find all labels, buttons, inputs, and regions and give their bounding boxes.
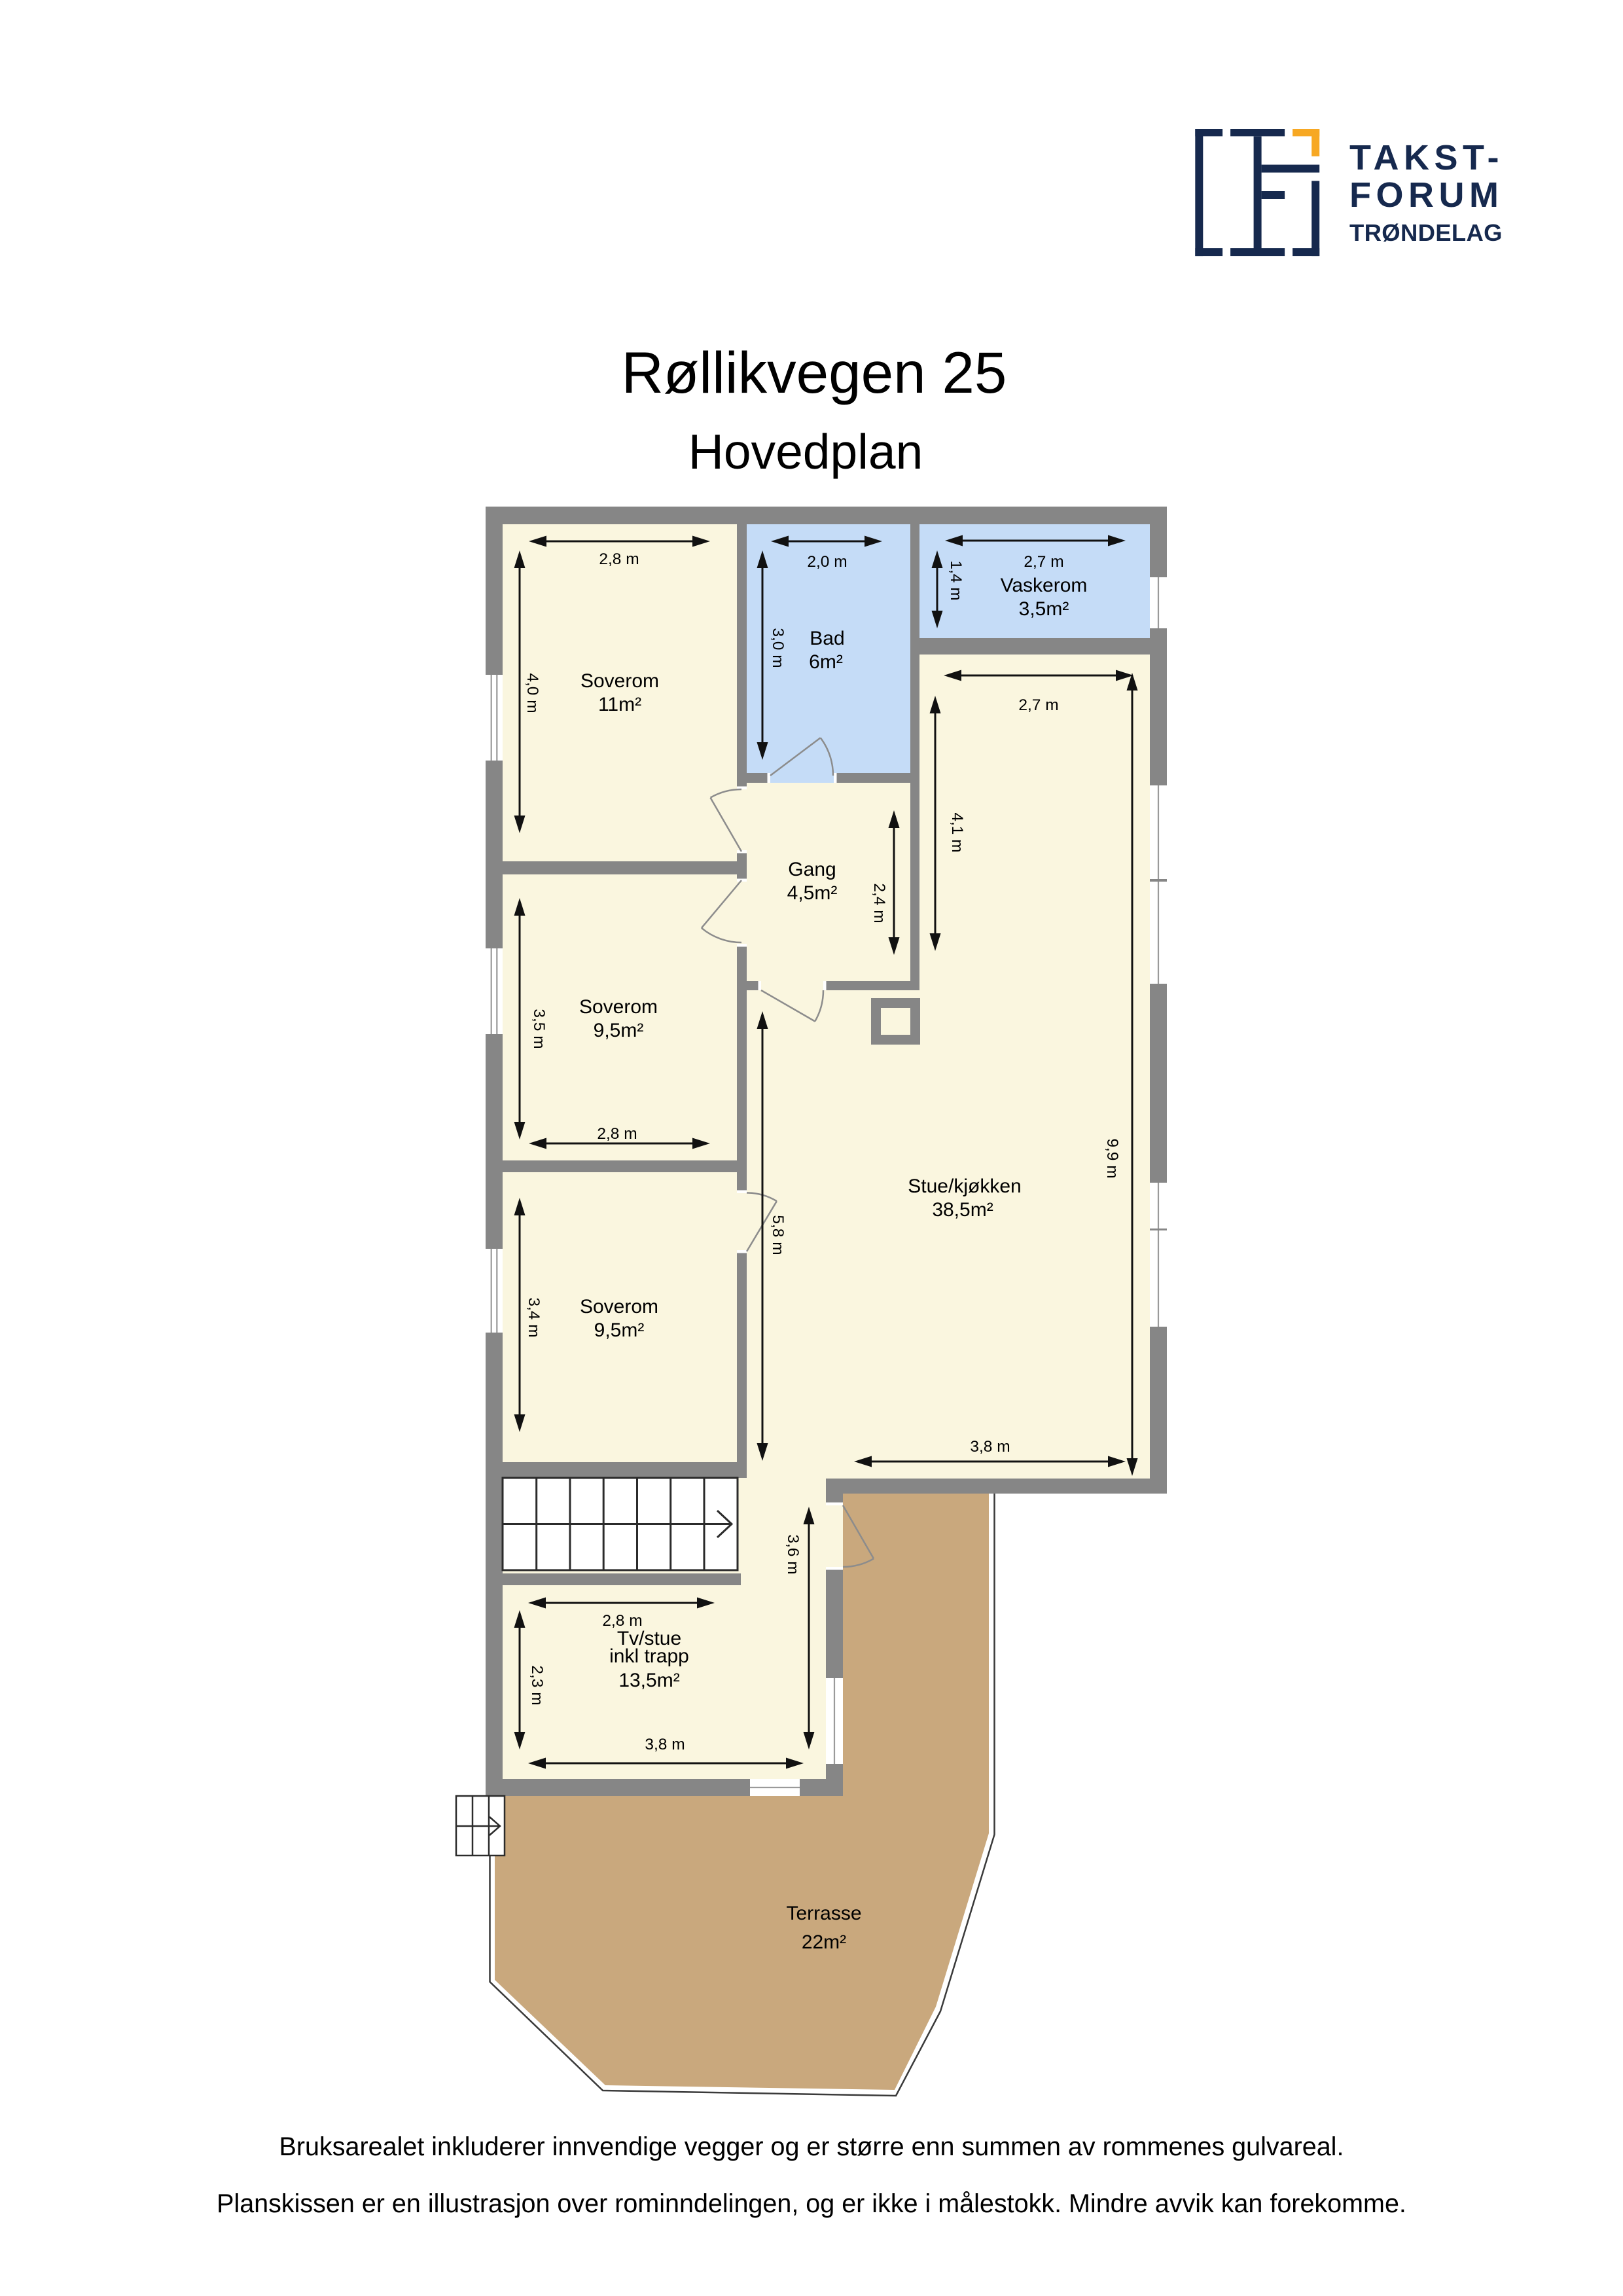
svg-text:TRØNDELAG: TRØNDELAG [1349, 219, 1503, 246]
svg-text:2,8 m: 2,8 m [599, 550, 639, 568]
svg-text:1,4 m: 1,4 m [947, 560, 965, 600]
svg-text:3,5 m: 3,5 m [530, 1009, 548, 1049]
svg-text:FORUM: FORUM [1349, 175, 1503, 215]
svg-text:2,8 m: 2,8 m [597, 1125, 637, 1143]
svg-text:9,9 m: 9,9 m [1103, 1138, 1121, 1178]
svg-text:3,0 m: 3,0 m [769, 628, 787, 668]
svg-text:3,8 m: 3,8 m [970, 1438, 1010, 1456]
svg-text:Soverom: Soverom [579, 996, 658, 1018]
svg-text:Soverom: Soverom [580, 1296, 658, 1318]
svg-text:9,5m²: 9,5m² [594, 1319, 645, 1341]
svg-text:Soverom: Soverom [580, 670, 659, 692]
svg-text:2,7 m: 2,7 m [1018, 696, 1058, 714]
svg-text:Terrasse: Terrasse [786, 1903, 861, 1924]
svg-text:2,4 m: 2,4 m [870, 883, 888, 923]
svg-text:Bruksarealet inkluderer innven: Bruksarealet inkluderer innvendige vegge… [279, 2132, 1344, 2161]
svg-text:TAKST-: TAKST- [1349, 138, 1504, 177]
svg-text:5,8 m: 5,8 m [769, 1215, 787, 1255]
svg-text:3,4 m: 3,4 m [525, 1297, 543, 1337]
svg-text:13,5m²: 13,5m² [618, 1670, 679, 1691]
svg-text:Gang: Gang [788, 859, 836, 880]
svg-text:9,5m²: 9,5m² [594, 1020, 644, 1041]
svg-text:4,0 m: 4,0 m [524, 673, 541, 713]
svg-text:Røllikvegen 25: Røllikvegen 25 [622, 340, 1007, 405]
svg-text:Vaskerom: Vaskerom [1001, 575, 1088, 596]
svg-text:3,5m²: 3,5m² [1019, 598, 1069, 620]
svg-text:2,8 m: 2,8 m [602, 1612, 642, 1630]
svg-text:38,5m²: 38,5m² [932, 1199, 993, 1221]
svg-text:3,8 m: 3,8 m [645, 1736, 685, 1753]
svg-text:Hovedplan: Hovedplan [688, 424, 923, 479]
svg-text:11m²: 11m² [598, 694, 641, 715]
svg-text:4,5m²: 4,5m² [787, 882, 838, 904]
svg-text:22m²: 22m² [802, 1931, 846, 1953]
svg-text:4,1 m: 4,1 m [948, 812, 966, 852]
svg-text:inkl trapp: inkl trapp [609, 1645, 689, 1667]
svg-text:2,3 m: 2,3 m [528, 1665, 546, 1705]
svg-text:Planskissen er en illustrasjon: Planskissen er en illustrasjon over romi… [217, 2189, 1406, 2218]
svg-text:2,0 m: 2,0 m [807, 553, 847, 571]
svg-text:Bad: Bad [810, 628, 844, 649]
svg-text:6m²: 6m² [809, 651, 843, 673]
svg-text:3,6 m: 3,6 m [784, 1534, 802, 1574]
svg-text:2,7 m: 2,7 m [1024, 553, 1063, 571]
svg-text:Stue/kjøkken: Stue/kjøkken [908, 1175, 1021, 1197]
